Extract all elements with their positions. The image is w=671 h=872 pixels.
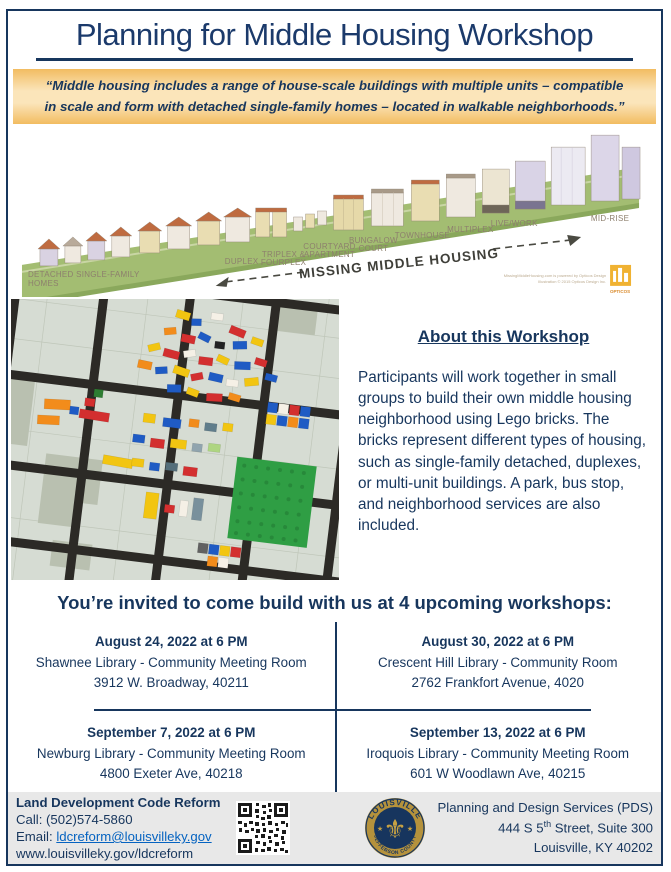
workshops-grid: August 24, 2022 at 6 PM Shawnee Library … xyxy=(8,618,661,800)
workshop-datetime: August 24, 2022 at 6 PM xyxy=(32,632,311,653)
label-duplex: DUPLEX xyxy=(225,256,259,265)
workshop-card-3: September 7, 2022 at 6 PM Newburg Librar… xyxy=(8,709,335,800)
pds-org: Planning and Design Services (PDS) xyxy=(437,798,653,818)
label-midrise: MID-RISE xyxy=(591,214,629,223)
green-baseplate xyxy=(227,456,316,547)
footer-pds-text: Planning and Design Services (PDS) 444 S… xyxy=(437,798,653,858)
about-section: About this Workshop Participants will wo… xyxy=(342,297,661,584)
title-underline xyxy=(36,58,633,61)
svg-text:Illustration © 2015 Opticos De: Illustration © 2015 Opticos Design Inc. xyxy=(538,278,606,283)
flyer-page: Planning for Middle Housing Workshop “Mi… xyxy=(6,9,663,866)
louisville-seal-icon: LOUISVILLE JEFFERSON COUNTY ⚜ ★ ★ xyxy=(363,796,427,860)
page-title: Planning for Middle Housing Workshop xyxy=(18,17,651,53)
workshop-address: 3912 W. Broadway, 40211 xyxy=(32,673,311,694)
footer-email-label: Email: xyxy=(16,829,56,844)
grid-vertical-divider xyxy=(335,622,337,804)
svg-text:COURT: COURT xyxy=(359,243,389,252)
workshop-address: 601 W Woodlawn Ave, 40215 xyxy=(359,764,638,785)
footer-email-link[interactable]: ldcreform@louisvilleky.gov xyxy=(56,829,211,844)
qr-code-icon xyxy=(236,801,290,855)
workshop-datetime: August 30, 2022 at 6 PM xyxy=(359,632,638,653)
workshop-venue: Newburg Library - Community Meeting Room xyxy=(32,744,311,765)
workshop-address: 4800 Exeter Ave, 40218 xyxy=(32,764,311,785)
seal-star-left-icon: ★ xyxy=(377,825,383,833)
opticos-credit: OPTICOS MissingMiddleHousing.com is powe… xyxy=(504,264,631,293)
lego-neighborhood-photo xyxy=(8,297,342,584)
fleur-de-lis-icon: ⚜ xyxy=(384,814,407,844)
workshop-venue: Shawnee Library - Community Meeting Room xyxy=(32,653,311,674)
about-body: Participants will work together in small… xyxy=(358,367,649,537)
svg-text:HOMES: HOMES xyxy=(28,278,59,287)
street-grid xyxy=(11,299,339,580)
quote-banner: “Middle housing includes a range of hous… xyxy=(13,69,656,124)
workshops-heading: You’re invited to come build with us at … xyxy=(8,592,661,614)
workshop-datetime: September 7, 2022 at 6 PM xyxy=(32,723,311,744)
workshop-venue: Crescent Hill Library - Community Room xyxy=(359,653,638,674)
workshop-datetime: September 13, 2022 at 6 PM xyxy=(359,723,638,744)
workshop-venue: Iroquois Library - Community Meeting Roo… xyxy=(359,744,638,765)
workshop-card-2: August 30, 2022 at 6 PM Crescent Hill Li… xyxy=(335,618,662,709)
label-multiplex: MULTIPLEX xyxy=(447,224,494,233)
workshop-address: 2762 Frankfort Avenue, 4020 xyxy=(359,673,638,694)
pds-address: 444 S 5th Street, Suite 300 xyxy=(437,818,653,838)
seal-star-right-icon: ★ xyxy=(407,825,413,833)
label-livework: LIVE/WORK xyxy=(491,219,538,228)
pds-city: Louisville, KY 40202 xyxy=(437,838,653,858)
missing-middle-illustration: DETACHED SINGLE-FAMILY HOMES DUPLEX TRIP… xyxy=(10,125,659,297)
credit-text: MissingMiddleHousing.com is powered by O… xyxy=(504,272,606,277)
footer-phone: Call: (502)574-5860 xyxy=(16,811,220,828)
footer-contact-block: Land Development Code Reform Call: (502)… xyxy=(8,794,220,863)
label-detached: DETACHED SINGLE-FAMILY xyxy=(28,269,140,278)
missing-middle-svg: DETACHED SINGLE-FAMILY HOMES DUPLEX TRIP… xyxy=(10,125,659,297)
grid-horizontal-divider xyxy=(94,709,591,711)
workshop-card-4: September 13, 2022 at 6 PM Iroquois Libr… xyxy=(335,709,662,800)
footer-contact-title: Land Development Code Reform xyxy=(16,794,220,811)
svg-text:APARTMENT: APARTMENT xyxy=(304,249,355,258)
footer-email-line: Email: ldcreform@louisvilleky.gov xyxy=(16,828,220,845)
about-heading: About this Workshop xyxy=(358,327,649,347)
footer: Land Development Code Reform Call: (502)… xyxy=(8,792,661,864)
label-townhouse: TOWNHOUSE xyxy=(395,230,450,239)
footer-pds-block: LOUISVILLE JEFFERSON COUNTY ⚜ ★ ★ Planni… xyxy=(363,796,661,860)
workshop-card-1: August 24, 2022 at 6 PM Shawnee Library … xyxy=(8,618,335,709)
footer-website: www.louisvilleky.gov/ldcreform xyxy=(16,845,220,862)
svg-text:OPTICOS: OPTICOS xyxy=(610,288,630,293)
